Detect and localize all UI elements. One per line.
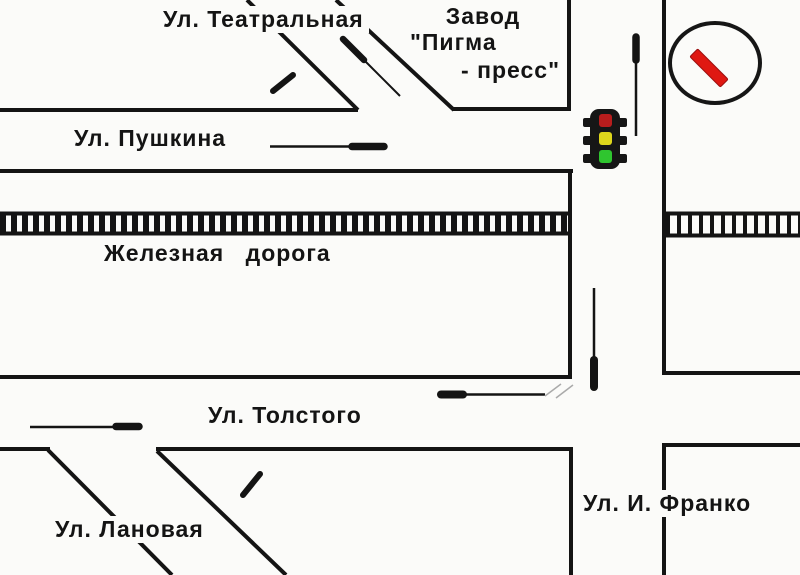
lanovaya-east-line [157,451,286,575]
theatralnaya-northwest-arrow [343,39,400,96]
sign-red-bar [689,48,729,88]
label-tolstogo-street: Ул. Толстого [208,402,362,429]
label-railway: Железная дорога [104,240,331,267]
label-theatralnaya-street: Ул. Театральная [158,6,369,33]
label-lanovaya-street: Ул. Лановая [50,516,209,543]
traffic-light-red-lamp [599,114,612,127]
faint-scribble [545,384,573,398]
lanovaya-west-line [48,450,172,575]
label-franko-street: Ул. И. Франко [578,490,756,517]
direction-dash-theatralnaya-west [273,75,293,91]
label-factory-line3: - пресс" [404,57,560,83]
label-factory-line1: Завод [404,3,562,29]
railway-east [666,214,800,236]
prohibition-sign [668,21,762,105]
railway-west [0,214,569,234]
street-map: Ул. Театральная Завод "Пигма - пресс" Ул… [0,0,800,575]
traffic-light-green-lamp [599,150,612,163]
label-pushkina-street: Ул. Пушкина [74,125,226,152]
traffic-light [583,109,627,171]
direction-dash-lanovaya [243,474,260,495]
label-factory-line2: "Пигма [410,29,497,55]
tolstogo-eastbound-arrow [30,427,139,428]
traffic-light-yellow-lamp [599,132,612,145]
